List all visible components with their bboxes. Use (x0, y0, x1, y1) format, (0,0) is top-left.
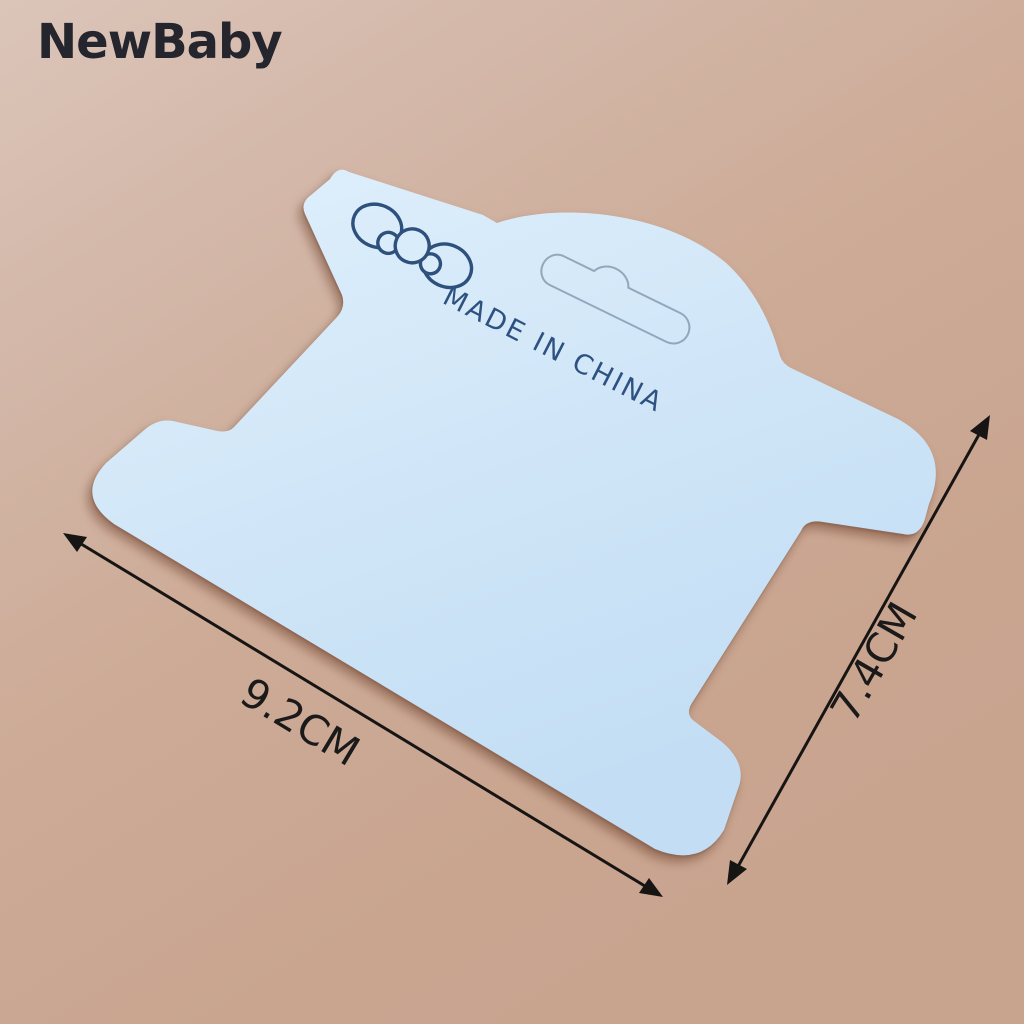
arrowhead-up-right (970, 415, 990, 440)
watermark-brand: NewBaby (37, 14, 282, 70)
arrowhead-down-right (639, 878, 663, 897)
card-shape (92, 170, 936, 856)
arrowhead-up-left (63, 533, 87, 552)
product-card (92, 170, 936, 856)
product-photo: NewBaby MADE IN CHINA 9.2CM 7.4CM (0, 0, 1024, 1024)
arrowhead-down-left (727, 860, 747, 885)
photo-scene (0, 0, 1024, 1024)
